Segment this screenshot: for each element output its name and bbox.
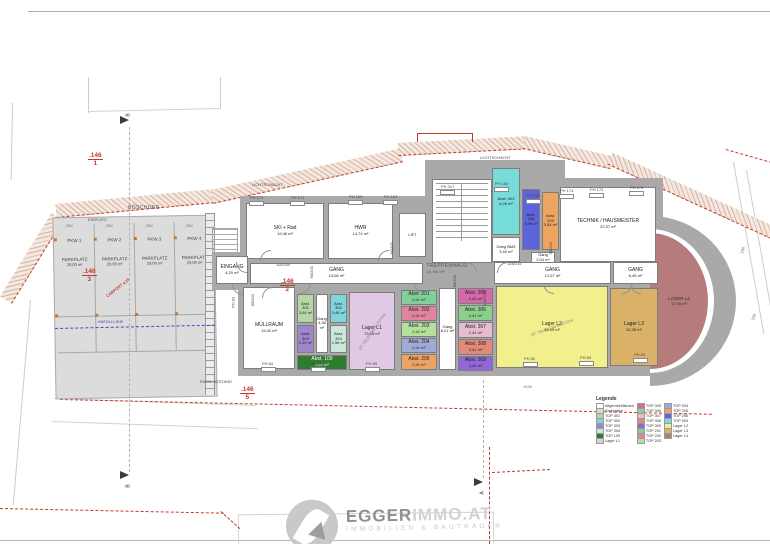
room-area: 3,99 m² xyxy=(524,222,538,226)
dimension-label: 250 xyxy=(186,224,193,229)
room-area: 2,41 m² xyxy=(469,364,483,368)
window-label: PH 169 xyxy=(349,195,362,200)
section-line xyxy=(129,127,130,472)
legend: Legende AllgemeinflächenParkplätzeTOP 30… xyxy=(596,396,688,443)
legend-row: Lager L1 xyxy=(596,438,634,443)
plot-number-label: .1465 xyxy=(240,386,255,402)
window-label: PH 174 xyxy=(630,186,643,191)
door-size-label: 90/200 xyxy=(549,242,554,254)
room-area: 73,55 m² xyxy=(364,332,380,336)
section-marker-arrow xyxy=(474,478,483,486)
legend-label: TOP 202 xyxy=(646,434,661,438)
brand-tagline: IMMOBILIEN & BAUTRÄGER xyxy=(346,524,503,534)
survey-line xyxy=(88,108,221,112)
room-gang: GANG6,45 m² xyxy=(613,262,658,284)
legend-label: TOP 003 xyxy=(673,419,688,423)
bollard-post xyxy=(134,237,137,240)
section-marker-arrow xyxy=(120,116,129,124)
room-area: 6,45 m² xyxy=(629,274,643,278)
room-abst-203: Abst. 2032,41 m² xyxy=(401,322,437,337)
legend-label: TOP 206 xyxy=(673,414,688,418)
logo-text: EGGERIMMO.AT IMMOBILIEN & BAUTRÄGER xyxy=(346,505,504,534)
legend-label: Lager L4 xyxy=(673,434,688,438)
room-abst-304: Abst. 3042,56 m² xyxy=(330,325,347,353)
plot-number: .146 xyxy=(88,152,103,160)
room-area: 17,40 m² xyxy=(671,301,687,306)
window xyxy=(523,362,538,367)
annotation-anf-lllinie: ANFÜLLLINIE xyxy=(98,320,123,325)
boundary-hatch xyxy=(55,189,214,218)
bollard-post xyxy=(174,236,177,239)
legend-label: Parkplätze xyxy=(605,409,623,413)
door-size-label: 110/200 xyxy=(276,263,290,268)
legend-row: TOP 203 xyxy=(637,438,661,443)
door-swing-arc xyxy=(232,284,243,295)
room-area: 19,46 m² xyxy=(277,232,293,236)
window xyxy=(290,201,305,206)
legend-label: TOP 306 xyxy=(646,409,661,413)
section-marker-label: B xyxy=(126,484,132,487)
survey-line xyxy=(11,103,13,180)
room-area: 12,07 m² xyxy=(545,274,561,278)
window xyxy=(589,193,604,198)
room-abst-003: Abst. 0034,09 m² xyxy=(492,168,520,235)
parking-stall: PKW 1PARKPLATZ29,00 m² xyxy=(55,224,96,353)
window-label: PH 83 xyxy=(580,356,591,361)
stall-id: PKW 1 xyxy=(55,238,94,244)
legend-label: Lager L1 xyxy=(605,439,620,443)
legend-label: TOP 301 xyxy=(605,414,620,418)
window xyxy=(249,201,264,206)
legend-label: TOP 203 xyxy=(646,439,661,443)
section-marker-arrow xyxy=(120,471,129,479)
room-label: LIFT xyxy=(408,233,416,238)
terrain-contour-line xyxy=(52,421,258,429)
room-area: 13,06 m² xyxy=(329,274,345,278)
window xyxy=(311,367,326,372)
room-lager-l2: Lager L294,39 m²BT: TELEKOM AUSTRIA xyxy=(496,286,608,368)
legend-label: Lager L2 xyxy=(673,424,688,428)
legend-label: TOP 303 xyxy=(605,424,620,428)
door-size-label: 80/200 xyxy=(251,294,256,306)
plot-number: .146 xyxy=(82,268,97,276)
legend-label: TOP 307 xyxy=(646,414,661,418)
room-area: 2,41 m² xyxy=(412,363,426,367)
plot-index: 5 xyxy=(240,394,255,401)
annotation-eisplatz: EISPLATZ xyxy=(88,218,107,223)
section-marker-label: A xyxy=(480,491,486,494)
dimension-label: 290 xyxy=(740,246,746,254)
legend-column: TOP 305TOP 306TOP 307TOP 308TOP 309TOP 2… xyxy=(637,403,661,443)
window xyxy=(579,361,594,366)
room-area: 3,40 m² xyxy=(499,250,513,254)
legend-label: TOP 205 xyxy=(673,409,688,413)
room-area: 3,46 m² xyxy=(332,311,346,315)
stall-id: PKW 3 xyxy=(135,236,174,242)
room-abst-303: Abst. 3032,20 m² xyxy=(297,325,314,353)
legend-label: TOP 201 xyxy=(646,429,661,433)
annotation-b-schung: BÖSCHUNG xyxy=(128,206,160,212)
door-size-label: 90/200 xyxy=(390,242,395,254)
bollard-post xyxy=(175,312,178,315)
room-abst-302: Abst. 3023,46 m² xyxy=(330,294,347,323)
room-abst-307: Abst. 3072,41 m² xyxy=(458,322,493,338)
stall-id: PKW 2 xyxy=(95,237,134,243)
dimension-label: 250 xyxy=(146,224,153,229)
room-ski-rad: SKI + Rad19,46 m² xyxy=(246,203,324,259)
window-label: PH 82 xyxy=(231,297,236,308)
bollard-post xyxy=(55,314,58,317)
dimension-label: 250 xyxy=(66,224,73,229)
window-label: PH 174 xyxy=(560,189,573,194)
room-abst-205: Abst. 2052,41 m² xyxy=(401,354,437,370)
room-area: 8,21 m² xyxy=(441,329,455,333)
dimension-label: 230 xyxy=(751,313,757,321)
room-area: 2,20 m² xyxy=(299,341,313,345)
bollard-post xyxy=(94,238,97,241)
legend-label: Allgemeinflächen xyxy=(605,404,634,408)
room-area: 4,20 m² xyxy=(225,271,239,275)
room-area: 2,41 m² xyxy=(412,330,426,334)
parking-area: PKW 1PARKPLATZ29,00 m²PKW 2PARKPLATZ29,0… xyxy=(52,215,217,400)
annotation-rigol-bestand: RIGOL BESTAND xyxy=(200,380,232,385)
company-logo: EGGERIMMO.AT IMMOBILIEN & BAUTRÄGER xyxy=(285,496,503,544)
window-label: PH 84 xyxy=(262,362,273,367)
legend-swatch xyxy=(637,438,645,444)
legend-label: Lager L3 xyxy=(673,429,688,433)
floor-plan-sheet: PKW 1PARKPLATZ29,00 m²PKW 2PARKPLATZ29,0… xyxy=(0,0,770,544)
window-label: PH 85 xyxy=(312,362,323,367)
stall-area: 29,00 m² xyxy=(55,262,94,268)
legend-column: TOP 204TOP 205TOP 206TOP 003Lager L2Lage… xyxy=(664,403,688,438)
room-abst-308: Abst. 3082,41 m² xyxy=(458,339,493,355)
legend-label: TOP 305 xyxy=(646,404,661,408)
room-lift: LIFT xyxy=(399,213,426,257)
window xyxy=(629,191,644,196)
room-area: 15,42 m² xyxy=(261,329,277,333)
door-size-label: 128/215 xyxy=(507,262,521,267)
brand-secondary: IMMO.AT xyxy=(412,504,492,525)
window-label: PH 174 xyxy=(590,188,603,193)
window-label: PH 180 xyxy=(495,182,508,187)
room-lager-l1: Lager L173,55 m²BT: TELEKOM AUSTRIA xyxy=(349,292,395,370)
dimension-label: 250 xyxy=(106,224,113,229)
room-abst-305: Abst. 3052,41 m² xyxy=(458,288,493,304)
window xyxy=(383,200,398,205)
legend-label: TOP 302 xyxy=(605,419,620,423)
room-area: 2,41 m² xyxy=(469,297,483,301)
room-area: 22,57 m² xyxy=(600,225,616,229)
section-marker-label: B xyxy=(126,113,132,116)
annotation-lichtschacht: LICHTSCHACHT xyxy=(480,156,511,161)
annotation-lichtschacht: LICHTSCHACHT xyxy=(252,183,283,188)
legend-title: Legende xyxy=(596,396,688,402)
room-area: 2,41 m² xyxy=(412,298,426,302)
window-label: PH 167 xyxy=(384,195,397,200)
room-area: 14,74 m² xyxy=(353,232,369,236)
window xyxy=(559,194,574,199)
window xyxy=(261,367,276,372)
survey-line xyxy=(88,77,89,113)
door-size-label: 80/200 xyxy=(453,275,458,287)
plot-index: 3 xyxy=(82,276,97,283)
room-area: 3,04 m² xyxy=(544,223,558,227)
legend-label: TOP 309 xyxy=(646,424,661,428)
room-technik-hausmeister: TECHNIK / HAUSMEISTER22,57 m² xyxy=(560,187,656,262)
bollard-post xyxy=(54,238,57,241)
legend-label: TOP 304 xyxy=(605,429,620,433)
window-label: PH 171 xyxy=(291,196,304,201)
window xyxy=(633,358,648,363)
bollard-post xyxy=(135,313,138,316)
legend-swatch xyxy=(664,433,672,439)
room-area: 94,39 m² xyxy=(544,328,560,332)
plot-number: .146 xyxy=(280,278,295,286)
window xyxy=(365,367,380,372)
legend-row: Lager L4 xyxy=(664,433,688,438)
window-label: PH 317 xyxy=(441,185,454,190)
brand-name: EGGERIMMO.AT xyxy=(346,505,503,525)
legend-label: TOP 308 xyxy=(646,419,661,423)
legend-label: TOP 109 xyxy=(605,434,620,438)
annotation-sub: 15,98 m² xyxy=(426,270,468,275)
window xyxy=(526,199,541,204)
logo-icon xyxy=(285,499,338,544)
room-area: 4,36 m² xyxy=(317,321,327,330)
room-area: 2,56 m² xyxy=(332,341,346,345)
room-abst-306: Abst. 3062,41 m² xyxy=(458,305,493,321)
room-gang: Gang4,36 m² xyxy=(316,294,328,353)
window xyxy=(348,200,363,205)
room-abst-309: Abst. 3092,41 m² xyxy=(458,356,493,371)
window xyxy=(494,187,509,192)
stall-area: 29,00 m² xyxy=(135,260,174,266)
legend-column: AllgemeinflächenParkplätzeTOP 301TOP 302… xyxy=(596,403,634,443)
property-line xyxy=(0,508,224,514)
plot-number-label: .1461 xyxy=(88,152,103,168)
bollard-post xyxy=(95,314,98,317)
plot-index: 1 xyxy=(88,160,103,167)
room-abst-204: Abst. 2042,41 m² xyxy=(401,338,437,353)
section-line xyxy=(483,380,484,478)
plot-number: .146 xyxy=(240,386,255,394)
property-line xyxy=(492,469,550,473)
parking-stall: PKW 3PARKPLATZ29,00 m² xyxy=(135,222,176,351)
room-area: 2,41 m² xyxy=(469,331,483,335)
room-area: 2,41 m² xyxy=(412,314,426,318)
room-area: 2,41 m² xyxy=(412,346,426,350)
room-area: 3,04 m² xyxy=(299,311,313,315)
room-abst-202: Abst. 2022,41 m² xyxy=(401,306,437,321)
survey-line xyxy=(220,77,221,108)
window-label: PH 89 xyxy=(634,353,645,358)
sheet-top-line xyxy=(28,11,770,12)
brand-primary: EGGER xyxy=(346,506,413,526)
plot-index: 2 xyxy=(280,286,295,293)
window-label: PH 89 xyxy=(366,362,377,367)
room-gang-bmz: Gang BMZ3,40 m² xyxy=(492,237,520,262)
annotation-treppenhaus: TREPPENHAUS15,98 m² xyxy=(426,264,468,274)
window-label: PH 183 xyxy=(527,194,540,199)
room-area: 4,09 m² xyxy=(499,202,513,206)
dimension-label: 1930 xyxy=(523,385,532,390)
plot-number-label: .1462 xyxy=(280,278,295,294)
window-label: PH 171 xyxy=(250,196,263,201)
room-abst-301: Abst. 3013,04 m² xyxy=(297,294,314,323)
stair-center-line xyxy=(461,183,462,241)
room-area: 2,41 m² xyxy=(469,348,483,352)
legend-label: TOP 204 xyxy=(673,404,688,408)
room-area: 2,41 m² xyxy=(469,314,483,318)
room-gang: Gang8,21 m² xyxy=(439,288,456,370)
door-size-label: 90/200 xyxy=(310,266,315,278)
boundary-step-line xyxy=(417,133,473,142)
room-area: 32,35 m² xyxy=(626,328,642,332)
terrain-contour-line xyxy=(13,300,31,505)
legend-swatch xyxy=(596,438,604,444)
door-size-label: 100/200 xyxy=(483,291,488,305)
legend-columns: AllgemeinflächenParkplätzeTOP 301TOP 302… xyxy=(596,403,688,443)
plot-number-label: .1463 xyxy=(82,268,97,284)
window xyxy=(440,190,455,195)
window-label: PH 82 xyxy=(524,357,535,362)
